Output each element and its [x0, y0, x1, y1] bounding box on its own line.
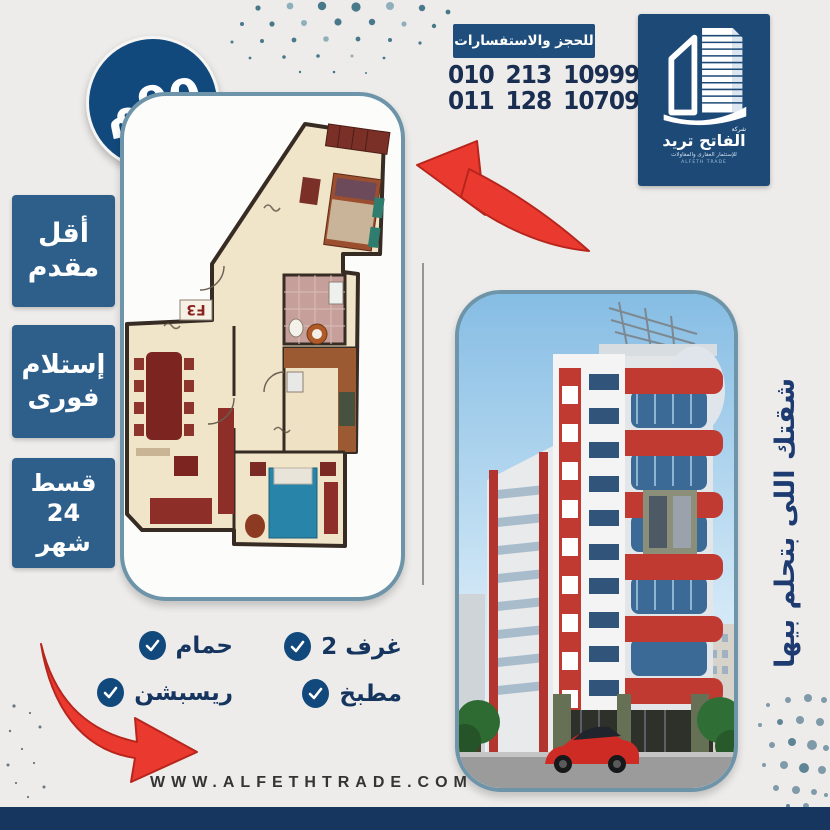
vertical-divider: [422, 263, 424, 585]
badge-24-month-installment: قسط 24 شهر: [12, 458, 115, 568]
check-icon: [97, 678, 124, 707]
building-render-image: [459, 294, 734, 788]
booking-banner-label: للحجز والاستفسارات: [454, 33, 593, 49]
badge-lowest-downpayment: أقل مقدم: [12, 195, 115, 307]
check-icon: [284, 632, 311, 661]
poster-canvas: 90م أقل مقدم إستلام فورى قسط 24 شهر: [0, 0, 830, 830]
vertical-tagline: شقتك اللى بتحلم بيها: [770, 298, 810, 748]
badge-line: إستلام: [12, 349, 115, 382]
feature-kitchen-label: مطبخ: [339, 681, 402, 707]
logo-building-icon: [656, 24, 752, 128]
arrow-to-website-icon: [25, 636, 210, 796]
feature-kitchen: مطبخ: [302, 679, 402, 708]
floor-plan-panel: F3: [120, 92, 405, 601]
floor-plan-unit-label: F3: [186, 301, 205, 317]
feature-rooms: 2 غرف: [284, 632, 402, 661]
website-url: WWW.ALFETHTRADE.COM: [150, 774, 480, 792]
dots-pattern-top: [190, 0, 460, 84]
phone-number-1: 010 213 10999: [448, 62, 588, 88]
feature-reception-label: ريسبشن: [134, 680, 233, 706]
badge-immediate-delivery: إستلام فورى: [12, 325, 115, 438]
feature-rooms-label: 2 غرف: [321, 634, 402, 660]
badge-line: أقل: [12, 217, 115, 251]
logo-tagline: للإستثمار العقارى والمقاولات: [671, 152, 737, 158]
logo-tagline-en: ALFETH TRADE: [681, 160, 727, 165]
badge-line: 24: [12, 498, 115, 528]
bottom-bar: [0, 807, 830, 830]
check-icon: [139, 631, 166, 660]
building-render-panel: [455, 290, 738, 792]
badge-line: شهر: [12, 528, 115, 558]
floor-plan-image: F3: [124, 96, 401, 597]
logo-company-name: الفاتح تريد: [662, 133, 745, 149]
feature-bathroom: حمام: [139, 631, 234, 660]
badge-line: مقدم: [12, 251, 115, 285]
company-logo: شركة الفاتح تريد للإستثمار العقارى والمق…: [638, 14, 770, 186]
check-icon: [302, 679, 329, 708]
feature-reception: ريسبشن: [97, 678, 233, 707]
badge-line: فورى: [12, 382, 115, 415]
phone-numbers: 010 213 10999 011 128 10709: [448, 62, 588, 115]
booking-banner: للحجز والاستفسارات: [453, 24, 595, 58]
arrow-to-floorplan-icon: [405, 125, 600, 265]
phone-number-2: 011 128 10709: [448, 88, 588, 114]
feature-bathroom-label: حمام: [176, 633, 234, 659]
badge-line: قسط: [12, 468, 115, 498]
